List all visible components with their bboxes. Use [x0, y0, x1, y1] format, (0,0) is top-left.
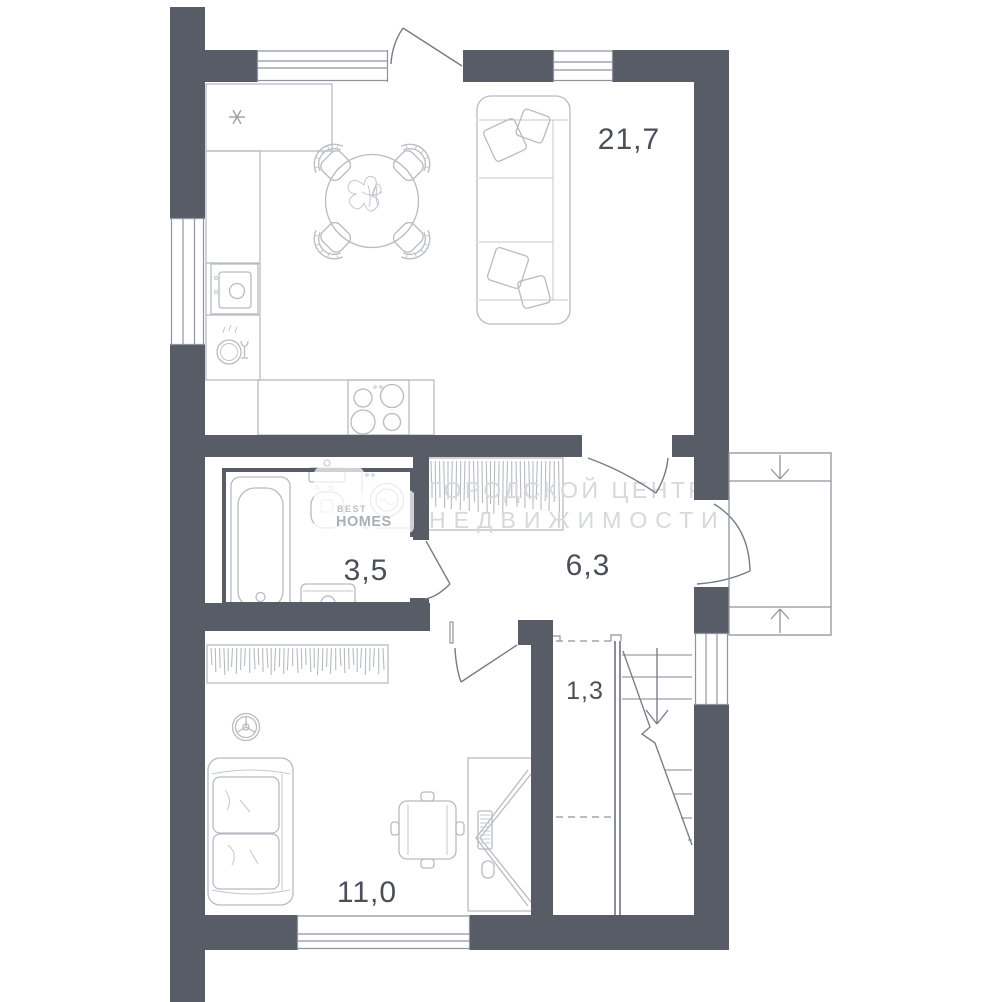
ceiling-light-icon — [233, 714, 260, 741]
bathroom-area-label: 3,5 — [344, 554, 389, 587]
stove-icon — [348, 380, 409, 435]
hallway-area-label: 6,3 — [566, 549, 611, 582]
door-bedroom — [450, 622, 517, 682]
dishwasher-icon — [217, 325, 248, 364]
window-top-right — [553, 50, 613, 82]
best-homes-logo: BEST HOMES — [314, 467, 414, 536]
watermark-line2: НЕДВИЖИМОСТИ — [429, 507, 726, 533]
wall-left-upper — [170, 7, 205, 218]
window-bottom — [297, 915, 470, 950]
logo-text-homes: HOMES — [336, 514, 392, 530]
floor-plan-page: ГОРОДСКОЙ ЦЕНТР НЕДВИЖИМОСТИ — [0, 0, 1000, 1002]
watermark: ГОРОДСКОЙ ЦЕНТР НЕДВИЖИМОСТИ — [429, 476, 726, 533]
stairs-area-label: 1,3 — [566, 677, 604, 705]
stair-direction-arrow — [646, 648, 668, 724]
mouse-icon — [482, 861, 494, 878]
floor-plan: ГОРОДСКОЙ ЦЕНТР НЕДВИЖИМОСТИ — [0, 0, 1000, 1002]
window-left — [170, 218, 205, 345]
wall-top-1 — [197, 50, 257, 82]
kitchen-counter — [206, 84, 434, 435]
bathtub-icon — [231, 477, 290, 623]
door-bathroom — [425, 541, 450, 599]
bedroom-area-label: 11,0 — [337, 876, 397, 909]
porch-arrow-up — [771, 609, 789, 633]
wall-bath-right — [413, 457, 429, 540]
desk-icon — [468, 758, 532, 911]
living-area-label: 21,7 — [598, 123, 660, 156]
walls-layer — [170, 7, 729, 1002]
wall-top-2 — [463, 50, 553, 82]
kitchen-sink-icon — [211, 264, 258, 314]
plant-icon — [348, 176, 382, 211]
bedroom-sofa-icon — [208, 758, 293, 905]
wall-bedroom-stairs — [531, 640, 553, 918]
door-balcony-top — [391, 28, 462, 66]
porch-arrow-down — [771, 455, 789, 479]
wall-bath-bottom — [205, 603, 430, 631]
wall-right-stub — [694, 587, 729, 633]
wall-divider-stub — [672, 435, 694, 457]
bedroom-wardrobe-icon — [207, 645, 388, 683]
wall-top-3 — [613, 50, 729, 82]
dining-table-icon — [307, 137, 437, 266]
logo-text-best: BEST — [337, 504, 367, 514]
wall-bottom-1 — [200, 915, 297, 950]
wall-bottom-2 — [470, 915, 729, 950]
entrance-porch — [729, 453, 831, 635]
watermark-line1: ГОРОДСКОЙ ЦЕНТР — [429, 476, 707, 503]
wall-right-upper — [694, 82, 729, 500]
desk-chair-icon — [391, 792, 464, 868]
fridge-icon — [229, 110, 245, 124]
window-top-left — [257, 50, 388, 82]
living-sofa-icon — [477, 96, 570, 324]
keyboard-icon — [478, 811, 492, 849]
wall-right-lower — [694, 705, 729, 950]
wall-divider — [170, 435, 582, 457]
window-stairs-right — [694, 633, 729, 705]
